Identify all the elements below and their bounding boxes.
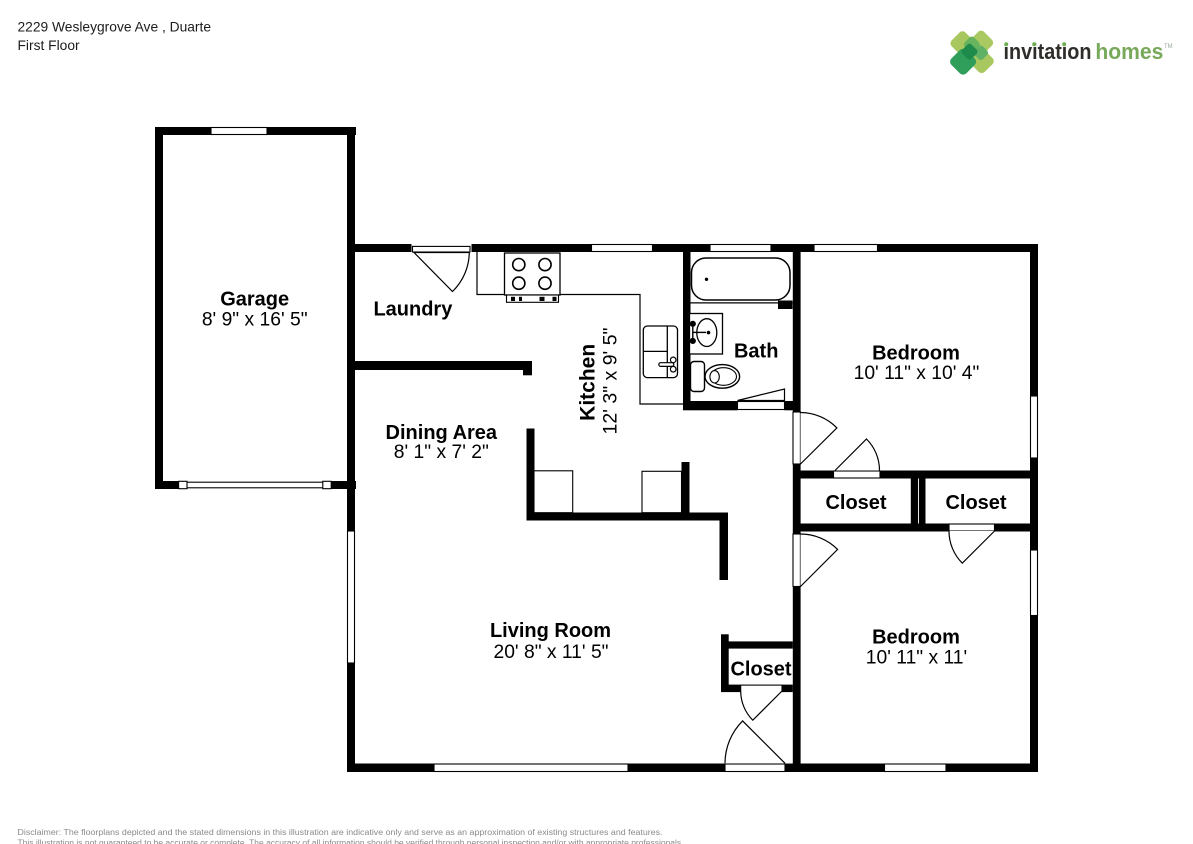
svg-text:Closet: Closet	[730, 659, 791, 681]
svg-text:Living Room: Living Room	[490, 620, 611, 642]
svg-text:Garage: Garage	[220, 289, 289, 311]
svg-text:Dining Area: Dining Area	[386, 422, 498, 444]
svg-text:12' 3" x 9' 5": 12' 3" x 9' 5"	[599, 327, 621, 434]
svg-text:10' 11" x 10' 4": 10' 11" x 10' 4"	[854, 363, 980, 384]
svg-text:10' 11" x 11': 10' 11" x 11'	[866, 648, 967, 669]
svg-text:Bedroom: Bedroom	[872, 342, 960, 364]
svg-text:This illustration is not guara: This illustration is not guaranteed to b…	[18, 838, 684, 844]
svg-text:20' 8" x 11' 5": 20' 8" x 11' 5"	[493, 642, 608, 663]
svg-text:Bedroom: Bedroom	[872, 627, 960, 649]
svg-text:Bath: Bath	[734, 341, 778, 363]
svg-text:Laundry: Laundry	[373, 299, 453, 321]
svg-text:Disclaimer: The floorplans dep: Disclaimer: The floorplans depicted and …	[18, 828, 663, 837]
svg-text:TM: TM	[1164, 44, 1173, 50]
svg-text:Kitchen: Kitchen	[576, 344, 599, 421]
svg-text:8' 1" x 7' 2": 8' 1" x 7' 2"	[394, 442, 489, 463]
svg-text:2229 Wesleygrove Ave , Duarte: 2229 Wesleygrove Ave , Duarte	[18, 19, 212, 34]
svg-text:homes: homes	[1095, 39, 1163, 64]
svg-text:invitation: invitation	[1004, 39, 1092, 64]
svg-text:First Floor: First Floor	[18, 38, 80, 53]
svg-text:Closet: Closet	[945, 492, 1006, 514]
svg-text:8' 9" x 16' 5": 8' 9" x 16' 5"	[202, 310, 308, 331]
svg-text:Closet: Closet	[825, 492, 886, 514]
